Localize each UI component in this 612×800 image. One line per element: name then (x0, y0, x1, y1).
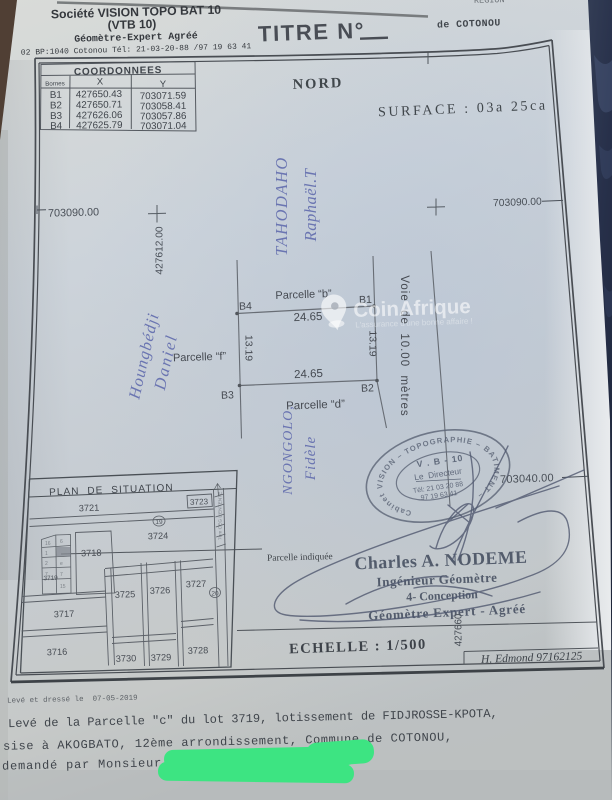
svg-text:B2: B2 (50, 100, 62, 111)
svg-text:B4: B4 (239, 300, 252, 312)
svg-text:6: 6 (60, 539, 63, 545)
svg-text:Y: Y (160, 79, 167, 90)
svg-text:13.19: 13.19 (243, 335, 255, 361)
svg-text:3726: 3726 (150, 585, 171, 596)
svg-text:24.65: 24.65 (294, 368, 323, 381)
svg-text:X: X (97, 76, 104, 87)
svg-text:TAHODAHO: TAHODAHO (272, 156, 291, 256)
svg-text:2: 2 (45, 561, 48, 567)
svg-text:Parcelle “f”: Parcelle “f” (173, 351, 227, 365)
svg-text:427660: 427660 (454, 613, 465, 646)
svg-text:TITRE N°: TITRE N° (258, 18, 366, 47)
svg-text:24.65: 24.65 (293, 311, 322, 324)
svg-text:3717: 3717 (54, 609, 75, 620)
svg-text:NGONGOLO,: NGONGOLO, (281, 405, 296, 496)
svg-text:3721: 3721 (79, 503, 100, 514)
svg-text:(VTB 10): (VTB 10) (107, 17, 156, 32)
svg-text:15: 15 (60, 584, 66, 590)
svg-text:703090.00: 703090.00 (48, 206, 99, 219)
svg-text:NORD: NORD (292, 75, 343, 93)
svg-text:e: e (60, 561, 63, 567)
svg-text:427625.79: 427625.79 (76, 120, 122, 132)
svg-text:B4: B4 (50, 121, 63, 132)
svg-text:703090.00: 703090.00 (493, 197, 542, 210)
svg-text:7: 7 (60, 572, 63, 578)
svg-text:20: 20 (211, 591, 219, 598)
svg-text:3727: 3727 (186, 579, 207, 590)
svg-text:3716: 3716 (47, 647, 68, 658)
svg-text:3724: 3724 (148, 531, 169, 542)
svg-text:B1: B1 (50, 90, 62, 101)
svg-text:de COTONOU: de COTONOU (437, 17, 501, 30)
svg-text:703071.04: 703071.04 (140, 121, 187, 133)
svg-text:703040.00: 703040.00 (500, 472, 554, 486)
svg-text:Parcelle indiquée: Parcelle indiquée (267, 552, 333, 564)
svg-text:3725: 3725 (115, 589, 136, 600)
svg-text:3728: 3728 (188, 645, 209, 656)
svg-text:13.19: 13.19 (367, 330, 379, 356)
svg-text:16: 16 (45, 541, 51, 547)
svg-text:COORDONNEES: COORDONNEES (74, 65, 162, 78)
svg-text:3723: 3723 (190, 497, 209, 507)
svg-text:REGION: REGION (474, 0, 505, 6)
svg-text:19: 19 (155, 519, 163, 526)
svg-text:7em CEG L'ENTENTE: 7em CEG L'ENTENTE (218, 492, 224, 540)
svg-text:Bornes: Bornes (45, 80, 65, 87)
svg-text:Fidèle: Fidèle (303, 436, 319, 481)
svg-text:3718: 3718 (81, 548, 102, 559)
svg-text:1: 1 (45, 551, 48, 557)
svg-text:3730: 3730 (116, 653, 137, 664)
svg-text:427612.00: 427612.00 (155, 226, 166, 274)
svg-text:3719: 3719 (43, 575, 58, 583)
svg-text:Raphaël.T: Raphaël.T (301, 167, 320, 242)
svg-text:B2: B2 (361, 382, 374, 394)
svg-text:B3: B3 (221, 389, 234, 401)
svg-text:3729: 3729 (151, 652, 172, 663)
